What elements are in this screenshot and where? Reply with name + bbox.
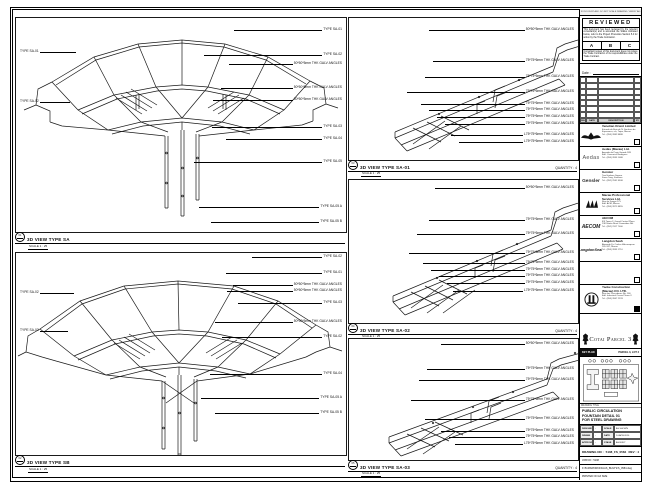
leader-label: L75*75*6mm THK GALV ANGLES bbox=[455, 442, 575, 446]
consultant-row: Venetian Orient LimitedEstrada da Baia d… bbox=[580, 124, 641, 147]
leader-text: 50*50*5mm THK GALV ANGLES bbox=[293, 320, 343, 323]
leader-text: TYPE SA-03 bbox=[19, 329, 40, 332]
leader-label: 75*75*6mm THK GALV ANGLES bbox=[439, 274, 575, 278]
leader-line bbox=[40, 293, 74, 294]
signoff-cell: DESIGNED bbox=[580, 425, 593, 432]
leader-line bbox=[210, 374, 322, 375]
leader-text: 75*75*6mm THK GALV ANGLES bbox=[525, 115, 575, 118]
consultant-list: Venetian Orient LimitedEstrada da Baia d… bbox=[580, 124, 641, 330]
leader-line bbox=[409, 253, 525, 254]
leader-label: 75*75*6mm THK GALV ANGLES bbox=[429, 218, 575, 222]
leader-text: 75*75*6mm THK GALV ANGLES bbox=[525, 435, 575, 438]
drawing-title-line: FOR STEEL DRAWING bbox=[582, 418, 639, 423]
leader-label: TYPE SA-05 A bbox=[199, 205, 343, 209]
leader-line bbox=[226, 139, 322, 140]
leader-text: 75*75*6mm THK GALV ANGLES bbox=[525, 102, 575, 105]
leader-text: 75*75*6mm THK GALV ANGLES bbox=[525, 274, 575, 277]
leader-text: TYPE SA-01 bbox=[322, 28, 343, 31]
leader-line bbox=[453, 291, 523, 292]
leader-line bbox=[194, 162, 322, 163]
panel-scale: SCALE 1 : 25 bbox=[28, 244, 48, 250]
leader-line bbox=[451, 135, 523, 136]
yaoke-logo bbox=[580, 285, 602, 313]
leader-line bbox=[238, 303, 322, 304]
leader-line bbox=[447, 283, 525, 284]
leader-line bbox=[431, 270, 525, 271]
file-path-row: F:\5108\WORKING\AS_BUILT\FS_0584.dwg bbox=[580, 465, 641, 473]
status-checkbox bbox=[634, 208, 640, 214]
leader-label: 75*75*6mm THK GALV ANGLES bbox=[409, 251, 575, 255]
leader-label: 75*75*6mm THK GALV ANGLES bbox=[425, 417, 575, 421]
date-label: Date : bbox=[582, 71, 591, 75]
panel-title-bar: 01 3D VIEW TYPE SA bbox=[15, 233, 345, 244]
leader-label: TYPE SA-05 bbox=[194, 160, 343, 164]
leader-line bbox=[439, 276, 525, 277]
leader-label: L75*75*6mm THK GALV ANGLES bbox=[453, 289, 575, 293]
reviewed-stamp-title: REVIEWED bbox=[583, 19, 639, 28]
signoff-cell: DATE bbox=[602, 432, 614, 439]
leader-line bbox=[449, 437, 525, 438]
panel-3d-view-type-sa-03: 50*50*5mm THK GALV ANGLES75*75*6mm THK G… bbox=[348, 338, 579, 461]
leader-line bbox=[40, 102, 70, 103]
leader-text: 50*50*5mm THK GALV ANGLES bbox=[293, 283, 343, 286]
leader-label: TYPE SA-03 bbox=[238, 301, 343, 305]
leader-line bbox=[459, 142, 523, 143]
detail-number: 04 bbox=[350, 326, 356, 330]
leader-label: 50*50*5mm THK GALV ANGLES bbox=[429, 28, 575, 32]
leader-line bbox=[445, 124, 525, 125]
leader-text: TYPE SA-02 bbox=[322, 255, 343, 258]
consultant-address-line: Tel : (853) 2882 8888 bbox=[602, 134, 640, 137]
leader-line bbox=[417, 234, 525, 235]
signoff-cell: SCALE bbox=[602, 425, 614, 432]
revision-table: REVDATEDESCRIPTIONBY bbox=[580, 77, 641, 124]
leader-text: TYPE SA-01 bbox=[19, 50, 40, 53]
leader-line bbox=[234, 30, 322, 31]
detail-number: 01 bbox=[17, 235, 23, 239]
signoff-cell: STAGE bbox=[602, 439, 614, 446]
revision-header-cell: BY bbox=[634, 118, 641, 124]
drawing-sheet-canvas: TYPE SA-01TYPE SA-0250*50*5mm THK GALV A… bbox=[0, 0, 650, 488]
panel-scale: SCALE 1 : 25 bbox=[361, 471, 381, 477]
leader-line bbox=[429, 220, 525, 221]
leader-text: TYPE SA-03 bbox=[322, 125, 343, 128]
signoff-cell: AS SHOWN bbox=[614, 425, 641, 432]
consultant-row bbox=[580, 262, 641, 285]
panel-scale: SCALE 1 : 25 bbox=[361, 171, 381, 177]
leader-label: 75*75*6mm THK GALV ANGLES bbox=[407, 90, 575, 94]
status-checkbox bbox=[634, 254, 640, 260]
leader-line bbox=[213, 100, 293, 101]
revision-value: REV : 4 bbox=[628, 450, 639, 454]
leader-line bbox=[215, 413, 319, 414]
leader-line bbox=[419, 380, 525, 381]
panel-title: 3D VIEW TYPE SB bbox=[27, 460, 70, 465]
leader-text: 50*50*5mm THK GALV ANGLES bbox=[293, 98, 343, 101]
title-block: IF IN DOUBT ASK. DO NOT SCALE DRAWING. V… bbox=[579, 9, 641, 480]
leader-text: 50*50*5mm THK GALV ANGLES bbox=[293, 86, 343, 89]
leader-text: 75*75*6mm THK GALV ANGLES bbox=[525, 90, 575, 93]
leader-label: TYPE SA-02 bbox=[204, 53, 343, 57]
panel-title: 3D VIEW TYPE SA bbox=[27, 237, 70, 242]
consultant-address-line: Tel : (853) 2833 1088 bbox=[602, 157, 640, 160]
leader-label: TYPE SA-05 B bbox=[215, 411, 343, 415]
key-plan-parcel: PARCEL 3, LOT 2 bbox=[618, 351, 641, 354]
consultant-address-line: Tel : (853) 2833 1710 bbox=[602, 249, 640, 252]
leader-label: 50*50*5mm THK GALV ANGLES bbox=[221, 86, 343, 90]
leader-text: 75*75*6mm THK GALV ANGLES bbox=[525, 218, 575, 221]
leader-text: 50*50*5mm THK GALV ANGLES bbox=[293, 62, 343, 65]
leader-labels-layer: TYPE SA-01TYPE SA-0250*50*5mm THK GALV A… bbox=[16, 18, 346, 232]
leader-line bbox=[429, 30, 525, 31]
panel-3d-view-type-sa-02: 50*50*5mm THK GALV ANGLES75*75*6mm THK G… bbox=[348, 179, 579, 324]
leader-label: TYPE SA-02 bbox=[222, 335, 343, 339]
detail-number: 03 bbox=[350, 163, 356, 167]
leader-label: 75*75*6mm THK GALV ANGLES bbox=[429, 108, 575, 112]
leader-line bbox=[211, 222, 319, 223]
leader-text: 75*75*6mm THK GALV ANGLES bbox=[525, 429, 575, 432]
leader-line bbox=[221, 88, 293, 89]
leader-text: 50*50*5mm THK GALV ANGLES bbox=[293, 289, 343, 292]
leader-label: 75*75*6mm THK GALV ANGLES bbox=[425, 75, 575, 79]
leader-line bbox=[212, 127, 322, 128]
leader-text: 75*75*6mm THK GALV ANGLES bbox=[525, 398, 575, 401]
signoff-cell: DRAWN bbox=[580, 432, 593, 439]
key-plan-label: KEY PLAN bbox=[580, 349, 597, 356]
status-checkbox bbox=[634, 231, 640, 237]
leader-text: 75*75*6mm THK GALV ANGLES bbox=[525, 108, 575, 111]
leader-line bbox=[421, 104, 525, 105]
leader-label: 75*75*6mm THK GALV ANGLES bbox=[441, 429, 575, 433]
leader-text: 75*75*6mm THK GALV ANGLES bbox=[525, 122, 575, 125]
status-checkbox bbox=[634, 185, 640, 191]
leader-label: 75*75*6mm THK GALV ANGLES bbox=[445, 122, 575, 126]
panel-scale: SCALE 1 : 25 bbox=[28, 467, 48, 473]
leader-label: 75*75*6mm THK GALV ANGLES bbox=[421, 102, 575, 106]
leader-text: TYPE SA-03 bbox=[322, 301, 343, 304]
status-checkbox bbox=[634, 306, 640, 312]
leader-text: 75*75*6mm THK GALV ANGLES bbox=[525, 75, 575, 78]
leader-line bbox=[407, 92, 525, 93]
leader-label: 75*75*6mm THK GALV ANGLES bbox=[419, 378, 575, 382]
mps-logo bbox=[580, 193, 602, 215]
leader-label: TYPE SA-05 B bbox=[211, 220, 343, 224]
leader-line bbox=[433, 61, 525, 62]
grade-c: C bbox=[621, 42, 639, 49]
leader-label: TYPE SA-05 A bbox=[201, 396, 343, 400]
leader-line bbox=[429, 110, 525, 111]
leader-text: L75*75*6mm THK GALV ANGLES bbox=[523, 140, 575, 143]
leader-label: 50*50*5mm THK GALV ANGLES bbox=[213, 98, 343, 102]
site-key-plan-map bbox=[582, 358, 640, 402]
detail-number: 02 bbox=[17, 458, 23, 462]
gensler-logo: Gensler bbox=[580, 170, 602, 192]
leader-text: TYPE SA-02 bbox=[19, 100, 40, 103]
revision-header-cell: DESCRIPTION bbox=[598, 118, 634, 124]
leader-label: 75*75*6mm THK GALV ANGLES bbox=[427, 367, 575, 371]
leader-text: 50*50*5mm THK GALV ANGLES bbox=[525, 28, 575, 31]
leader-text: TYPE SA-02 bbox=[322, 53, 343, 56]
key-plan: KEY PLAN PARCEL 3, LOT 2 bbox=[580, 349, 641, 404]
leader-line bbox=[423, 263, 525, 264]
detail-bubble-icon: 03 bbox=[348, 160, 358, 170]
project-banner: Cotai Parcel 3 bbox=[580, 330, 641, 349]
leader-label: TYPE SA-01 bbox=[19, 50, 76, 54]
signoff-cell: 14-APR-2010 bbox=[614, 432, 641, 439]
leader-label: TYPE SA-01 bbox=[226, 271, 343, 275]
panel-title: 3D VIEW TYPE SA-01 bbox=[360, 165, 410, 170]
leader-line bbox=[455, 444, 523, 445]
consultant-row: Macau Professional Services Ltd.Rua de X… bbox=[580, 193, 641, 216]
reviewed-stamp-body: This document has been reviewed by the r… bbox=[583, 28, 639, 41]
leader-text: 50*50*5mm THK GALV ANGLES bbox=[525, 186, 575, 189]
detail-bubble-icon: 02 bbox=[15, 455, 25, 465]
leader-line bbox=[201, 398, 319, 399]
leader-label: 75*75*6mm THK GALV ANGLES bbox=[423, 261, 575, 265]
leader-label: TYPE SA-03 bbox=[19, 329, 68, 333]
leader-line bbox=[227, 291, 293, 292]
leader-text: TYPE SA-05 bbox=[322, 160, 343, 163]
leader-labels-layer: 50*50*5mm THK GALV ANGLES75*75*6mm THK G… bbox=[349, 18, 578, 160]
leader-text: TYPE SA-05 B bbox=[319, 411, 343, 414]
leader-label: 50*50*5mm THK GALV ANGLES bbox=[227, 289, 343, 293]
panel-quantity: QUANTITY : 4 bbox=[555, 166, 577, 170]
panel-title-bar: 03 3D VIEW TYPE SA-01 QUANTITY : 4 bbox=[348, 161, 577, 172]
consultant-row: AedasAedas (Macau) Ltd.Avenida da Praia … bbox=[580, 147, 641, 170]
detail-bubble-icon: 04 bbox=[348, 323, 358, 333]
status-checkbox bbox=[634, 162, 640, 168]
consultant-address-line: Tel : (852) 2317 7000 bbox=[602, 226, 640, 229]
panel-quantity: QUANTITY : 4 bbox=[555, 329, 577, 333]
leader-text: TYPE SA-04 bbox=[322, 137, 343, 140]
leader-text: 75*75*6mm THK GALV ANGLES bbox=[525, 281, 575, 284]
leader-text: L75*75*6mm THK GALV ANGLES bbox=[523, 442, 575, 445]
leader-label: 50*50*5mm THK GALV ANGLES bbox=[441, 342, 575, 346]
panel-title: 3D VIEW TYPE SA-02 bbox=[360, 328, 410, 333]
panel-title-bar: 02 3D VIEW TYPE SB bbox=[15, 456, 345, 467]
leader-line bbox=[252, 257, 322, 258]
consultant-address-line: Tel : (852) 2591 9308 bbox=[602, 180, 640, 183]
leader-label: 75*75*6mm THK GALV ANGLES bbox=[447, 281, 575, 285]
review-grades: A B C bbox=[583, 41, 639, 50]
panel-title-bar: 04 3D VIEW TYPE SA-02 QUANTITY : 4 bbox=[348, 324, 577, 335]
leader-line bbox=[199, 207, 319, 208]
leader-text: 75*75*6mm THK GALV ANGLES bbox=[525, 232, 575, 235]
leader-label: 75*75*6mm THK GALV ANGLES bbox=[411, 398, 575, 402]
leader-label: 50*50*5mm THK GALV ANGLES bbox=[233, 283, 343, 287]
leader-line bbox=[411, 400, 525, 401]
leader-text: TYPE SA-05 A bbox=[319, 205, 343, 208]
signoff-cell: APPROVED bbox=[580, 439, 593, 446]
leader-text: TYPE SA-05 B bbox=[319, 220, 343, 223]
leader-text: 75*75*6mm THK GALV ANGLES bbox=[525, 261, 575, 264]
leader-line bbox=[437, 117, 525, 118]
leader-label: 50*50*5mm THK GALV ANGLES bbox=[215, 320, 343, 324]
drawing-no-value: 5108_FS_0584 bbox=[606, 450, 627, 454]
grade-a: A bbox=[583, 42, 602, 49]
leader-label: L75*75*6mm THK GALV ANGLES bbox=[459, 140, 575, 144]
leader-label: 75*75*6mm THK GALV ANGLES bbox=[433, 59, 575, 63]
leader-label: TYPE SA-02 bbox=[19, 291, 74, 295]
signoff-cell: - bbox=[593, 425, 602, 432]
reviewed-stamp-note: Consultant review of this document does … bbox=[583, 50, 639, 60]
leader-text: L75*75*6mm THK GALV ANGLES bbox=[523, 133, 575, 136]
signoff-table: DESIGNED-SCALEAS SHOWNDRAWN-DATE14-APR-2… bbox=[580, 425, 641, 447]
venetian-logo bbox=[580, 124, 602, 146]
signoff-cell: AS BUILT bbox=[614, 439, 641, 446]
leader-text: 75*75*6mm THK GALV ANGLES bbox=[525, 251, 575, 254]
leader-line bbox=[441, 431, 525, 432]
leader-label: TYPE SA-04 bbox=[210, 372, 343, 376]
leader-label: TYPE SA-02 bbox=[19, 100, 70, 104]
leader-label: 75*75*6mm THK GALV ANGLES bbox=[449, 435, 575, 439]
langdon-logo: LangdonSeah bbox=[580, 239, 602, 261]
revision-header-cell: DATE bbox=[586, 118, 598, 124]
leader-label: TYPE SA-03 bbox=[212, 125, 343, 129]
leader-text: TYPE SA-02 bbox=[19, 291, 40, 294]
review-stamp: REVIEWED This document has been reviewed… bbox=[580, 16, 641, 64]
drawing-no-label: DRAWING NO : bbox=[582, 450, 604, 454]
leader-text: 75*75*6mm THK GALV ANGLES bbox=[525, 268, 575, 271]
leader-text: TYPE SA-04 bbox=[322, 372, 343, 375]
leader-text: 75*75*6mm THK GALV ANGLES bbox=[525, 417, 575, 420]
leader-label: 50*50*5mm THK GALV ANGLES bbox=[229, 62, 343, 66]
panel-3d-view-type-sb: TYPE SA-02TYPE SA-0150*50*5mm THK GALV A… bbox=[15, 252, 347, 456]
leader-text: L75*75*6mm THK GALV ANGLES bbox=[523, 289, 575, 292]
drawing-title-section: DRAWING TITLE PUBLIC CIRCULATION FOUNTAI… bbox=[580, 404, 641, 425]
date-row: Date : bbox=[580, 64, 641, 77]
leader-text: 75*75*6mm THK GALV ANGLES bbox=[525, 59, 575, 62]
leader-label: L75*75*6mm THK GALV ANGLES bbox=[451, 133, 575, 137]
panel-title: 3D VIEW TYPE SA-03 bbox=[360, 465, 410, 470]
leader-line bbox=[435, 188, 525, 189]
consultant-row: GenslerGenslerTwo Harbour SquareKwun Ton… bbox=[580, 170, 641, 193]
signoff-cell: - bbox=[593, 432, 602, 439]
consultant-row: LangdonSeahLangdon SeahAlameda Dr. Carlo… bbox=[580, 239, 641, 262]
leader-line bbox=[40, 331, 68, 332]
panel-title-bar: 05 3D VIEW TYPE SA-03 QUANTITY : 4 bbox=[348, 461, 577, 472]
leader-line bbox=[204, 55, 322, 56]
banner-title: Cotai Parcel 3 bbox=[589, 336, 631, 343]
crest-icon bbox=[632, 333, 639, 345]
leader-label: TYPE SA-04 bbox=[226, 137, 343, 141]
date-fill-line bbox=[593, 74, 639, 75]
leader-label: 50*50*5mm THK GALV ANGLES bbox=[435, 186, 575, 190]
leader-line bbox=[215, 322, 293, 323]
leader-line bbox=[233, 285, 293, 286]
detail-bubble-icon: 05 bbox=[348, 460, 358, 470]
consultant-row: Yaoke Construction (Macau) CO. LTD.Rua d… bbox=[580, 285, 641, 314]
leader-line bbox=[425, 419, 525, 420]
grade-b: B bbox=[602, 42, 621, 49]
disclaimer-strip: IF IN DOUBT ASK. DO NOT SCALE DRAWING. V… bbox=[580, 9, 641, 16]
status-checkbox bbox=[634, 277, 640, 283]
job-number-row: JOB NO : 5108 bbox=[580, 457, 641, 465]
drawing-number-row: DRAWING NO : 5108_FS_0584 REV : 4 bbox=[580, 447, 641, 457]
leader-text: 75*75*6mm THK GALV ANGLES bbox=[525, 378, 575, 381]
leader-text: TYPE SA-05 A bbox=[319, 396, 343, 399]
leader-text: 75*75*6mm THK GALV ANGLES bbox=[525, 367, 575, 370]
leader-line bbox=[226, 273, 322, 274]
leader-label: TYPE SA-01 bbox=[234, 28, 343, 32]
panel-quantity: QUANTITY : 4 bbox=[555, 466, 577, 470]
crest-icon bbox=[582, 333, 589, 345]
consultant-row: AECOMAECOM8/F Tower 2, Grand Central Pla… bbox=[580, 216, 641, 239]
panel-3d-view-type-sa: TYPE SA-01TYPE SA-0250*50*5mm THK GALV A… bbox=[15, 17, 347, 233]
leader-labels-layer: TYPE SA-02TYPE SA-0150*50*5mm THK GALV A… bbox=[16, 253, 346, 455]
signoff-cell: - bbox=[593, 439, 602, 446]
leader-line bbox=[40, 52, 76, 53]
leader-line bbox=[427, 369, 525, 370]
leader-text: TYPE SA-02 bbox=[322, 335, 343, 338]
leader-label: 75*75*6mm THK GALV ANGLES bbox=[417, 232, 575, 236]
detail-bubble-icon: 01 bbox=[15, 232, 25, 242]
aecom-logo: AECOM bbox=[580, 216, 602, 238]
leader-line bbox=[229, 64, 293, 65]
leader-label: 75*75*6mm THK GALV ANGLES bbox=[431, 268, 575, 272]
panel-3d-view-type-sa-01: 50*50*5mm THK GALV ANGLES75*75*6mm THK G… bbox=[348, 17, 579, 161]
leader-text: 50*50*5mm THK GALV ANGLES bbox=[525, 342, 575, 345]
leader-line bbox=[425, 77, 525, 78]
status-checkbox bbox=[634, 139, 640, 145]
leader-line bbox=[222, 337, 322, 338]
leader-labels-layer: 50*50*5mm THK GALV ANGLES75*75*6mm THK G… bbox=[349, 339, 578, 460]
leader-labels-layer: 50*50*5mm THK GALV ANGLES75*75*6mm THK G… bbox=[349, 180, 578, 323]
aedas-logo: Aedas bbox=[580, 147, 602, 169]
leader-text: TYPE SA-01 bbox=[322, 271, 343, 274]
leader-line bbox=[441, 344, 525, 345]
consultant-address-line: Tel : (853) 2847 2233 bbox=[602, 298, 640, 301]
detail-number: 05 bbox=[350, 463, 356, 467]
leader-label: 75*75*6mm THK GALV ANGLES bbox=[437, 115, 575, 119]
status-row: PRINTED ON A3 SIZE bbox=[580, 473, 641, 480]
leader-label: TYPE SA-02 bbox=[252, 255, 343, 259]
none-logo bbox=[580, 262, 602, 284]
